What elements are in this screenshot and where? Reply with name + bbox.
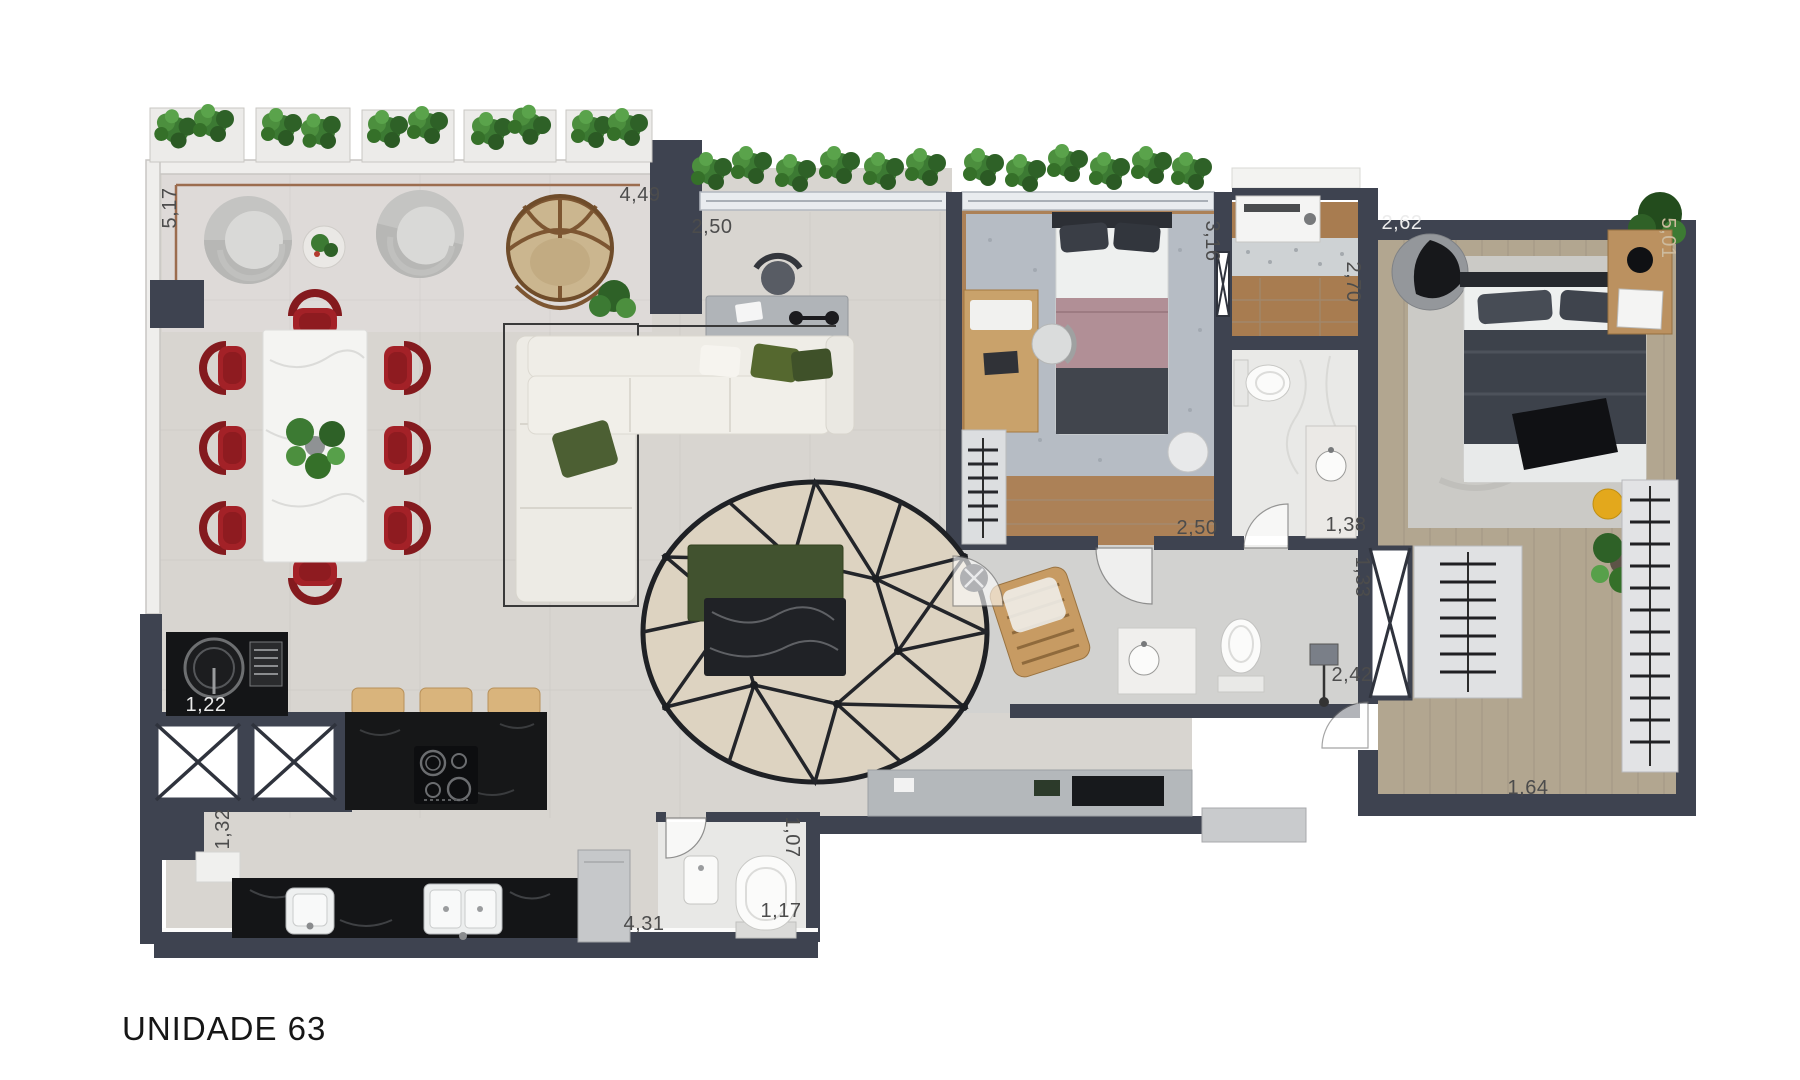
cooktop [414, 746, 478, 804]
dim-label-service-width: 1,32 [212, 809, 234, 850]
blanket-gray [1056, 368, 1168, 434]
picture-frame [1617, 289, 1663, 329]
dim-label-lavabo-depth: 1,07 [781, 817, 803, 858]
floor-plan-page: 5,17 4,49 2,50 3,16 2,70 2,62 5,01 2,50 … [0, 0, 1800, 1080]
console-item [894, 778, 914, 792]
dim-label-closet-width: 1,64 [1508, 777, 1549, 799]
prep-sink [286, 888, 334, 934]
yellow-stool [1593, 489, 1623, 519]
green-pillow [791, 348, 834, 382]
floor-plan-canvas: 5,17 4,49 2,50 3,16 2,70 2,62 5,01 2,50 … [0, 0, 1800, 1080]
grill-counter [166, 632, 288, 716]
table-lamp [1627, 247, 1653, 273]
pillow [1477, 289, 1553, 324]
toilet-2 [1218, 619, 1264, 692]
basin [684, 856, 718, 904]
kitchen-island [345, 688, 547, 810]
vanity-2 [1118, 628, 1196, 694]
terrace-parapet-left [146, 160, 160, 614]
side-table [303, 226, 345, 268]
dim-label-bath2-width: 2,42 [1332, 664, 1373, 686]
dim-label-hall-width: 1,33 [1351, 557, 1373, 598]
dim-label-kitchen-length: 4,31 [624, 913, 665, 935]
wardrobe-2 [962, 430, 1006, 544]
grill-grate [250, 642, 282, 686]
dim-label-bath1-width: 1,38 [1326, 514, 1367, 536]
terrace-planters [150, 100, 652, 162]
round-chair [1392, 234, 1468, 310]
white-pillow [699, 345, 741, 378]
tv-console [868, 770, 1192, 816]
cabinet [196, 852, 240, 882]
tv [1072, 776, 1164, 806]
desk-chair [1032, 324, 1074, 364]
dim-label-balcony-depth: 2,50 [692, 216, 733, 238]
dim-label-bedroom2-length: 3,16 [1201, 221, 1223, 262]
column [150, 280, 204, 328]
bar-stool [420, 688, 472, 716]
lounge-chair-1 [204, 196, 292, 284]
dim-label-terrace-front: 4,49 [620, 184, 661, 206]
pouf [1168, 432, 1208, 472]
laundry-terrazzo [1232, 238, 1358, 276]
console-item [1034, 780, 1060, 796]
bar-stool [488, 688, 540, 716]
pillow [1113, 222, 1161, 253]
dim-label-terrace-side: 5,17 [159, 188, 181, 229]
bar-stool [352, 688, 404, 716]
wardrobe-rail-right [1622, 480, 1678, 772]
double-sink [424, 884, 502, 940]
condenser-platform [1202, 808, 1306, 842]
hanging-chair [508, 196, 612, 308]
desk-2 [964, 290, 1038, 432]
bedroom2-hedge [963, 144, 1212, 192]
fridge [578, 850, 630, 942]
dim-label-laundry-length: 2,70 [1342, 262, 1364, 303]
dim-label-master-length: 5,01 [1657, 218, 1679, 259]
wardrobe-rail-mid [1414, 546, 1522, 698]
dim-label-lavabo-width: 1,17 [761, 900, 802, 922]
pillow [1059, 222, 1109, 253]
toilet [736, 856, 796, 938]
dim-label-master-width: 2,62 [1382, 212, 1423, 234]
dim-label-grill-width: 1,22 [186, 694, 227, 716]
bed-2 [1052, 212, 1172, 434]
dim-label-bedroom2-width: 2,50 [1177, 517, 1218, 539]
unit-title: UNIDADE 63 [122, 1010, 326, 1047]
coffee-table-black [704, 598, 846, 676]
